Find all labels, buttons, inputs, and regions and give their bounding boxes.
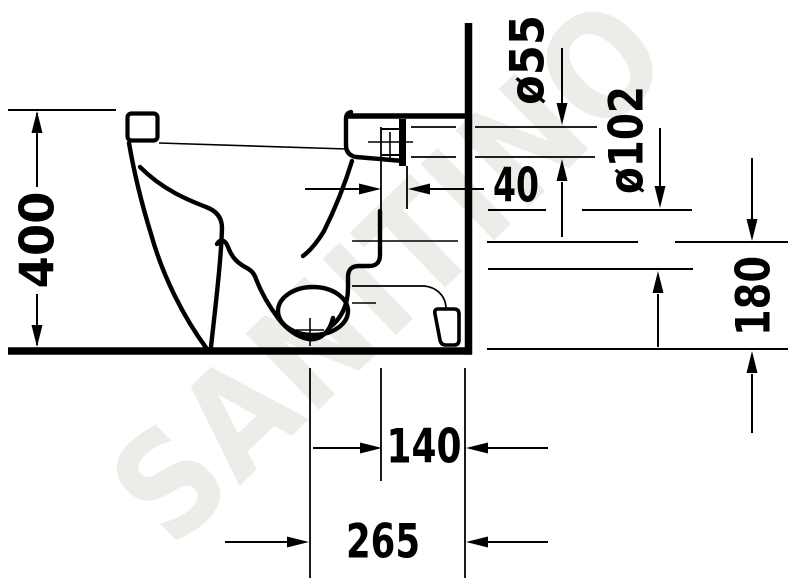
technical-drawing-page: SANITINO — [0, 0, 788, 580]
arrowhead-right-icon — [287, 537, 309, 548]
arrowhead-down-icon — [32, 325, 43, 347]
arrowhead-left-icon — [466, 443, 488, 454]
arrowhead-up-icon — [747, 351, 758, 373]
fixing-hole — [435, 309, 459, 345]
arrowhead-up-icon — [32, 111, 43, 133]
bowl-inner-profile — [140, 167, 222, 347]
outlet-265-label: 265 — [346, 515, 420, 570]
spigot-depth-label: 40 — [493, 159, 539, 214]
bowl-front-face — [129, 143, 207, 349]
water-line — [159, 143, 347, 149]
rim-section — [128, 114, 158, 141]
arrowhead-up-icon — [653, 271, 664, 293]
flush-diameter-label: ø55 — [501, 15, 556, 105]
height-dimension-label: 400 — [11, 192, 66, 289]
arrowhead-left-icon — [466, 537, 488, 548]
arrowhead-down-icon — [655, 186, 666, 208]
offset-140-label: 140 — [387, 420, 462, 475]
outlet-height-label: 180 — [727, 256, 782, 336]
outlet-diameter-label: ø102 — [600, 86, 655, 194]
arrowhead-down-icon — [747, 219, 758, 241]
dimension-outlet-265: 265 — [225, 515, 548, 570]
dimension-height-400: 400 — [8, 110, 116, 347]
arrowhead-right-icon — [360, 443, 382, 454]
toilet-dimension-diagram: SANITINO — [0, 0, 788, 580]
